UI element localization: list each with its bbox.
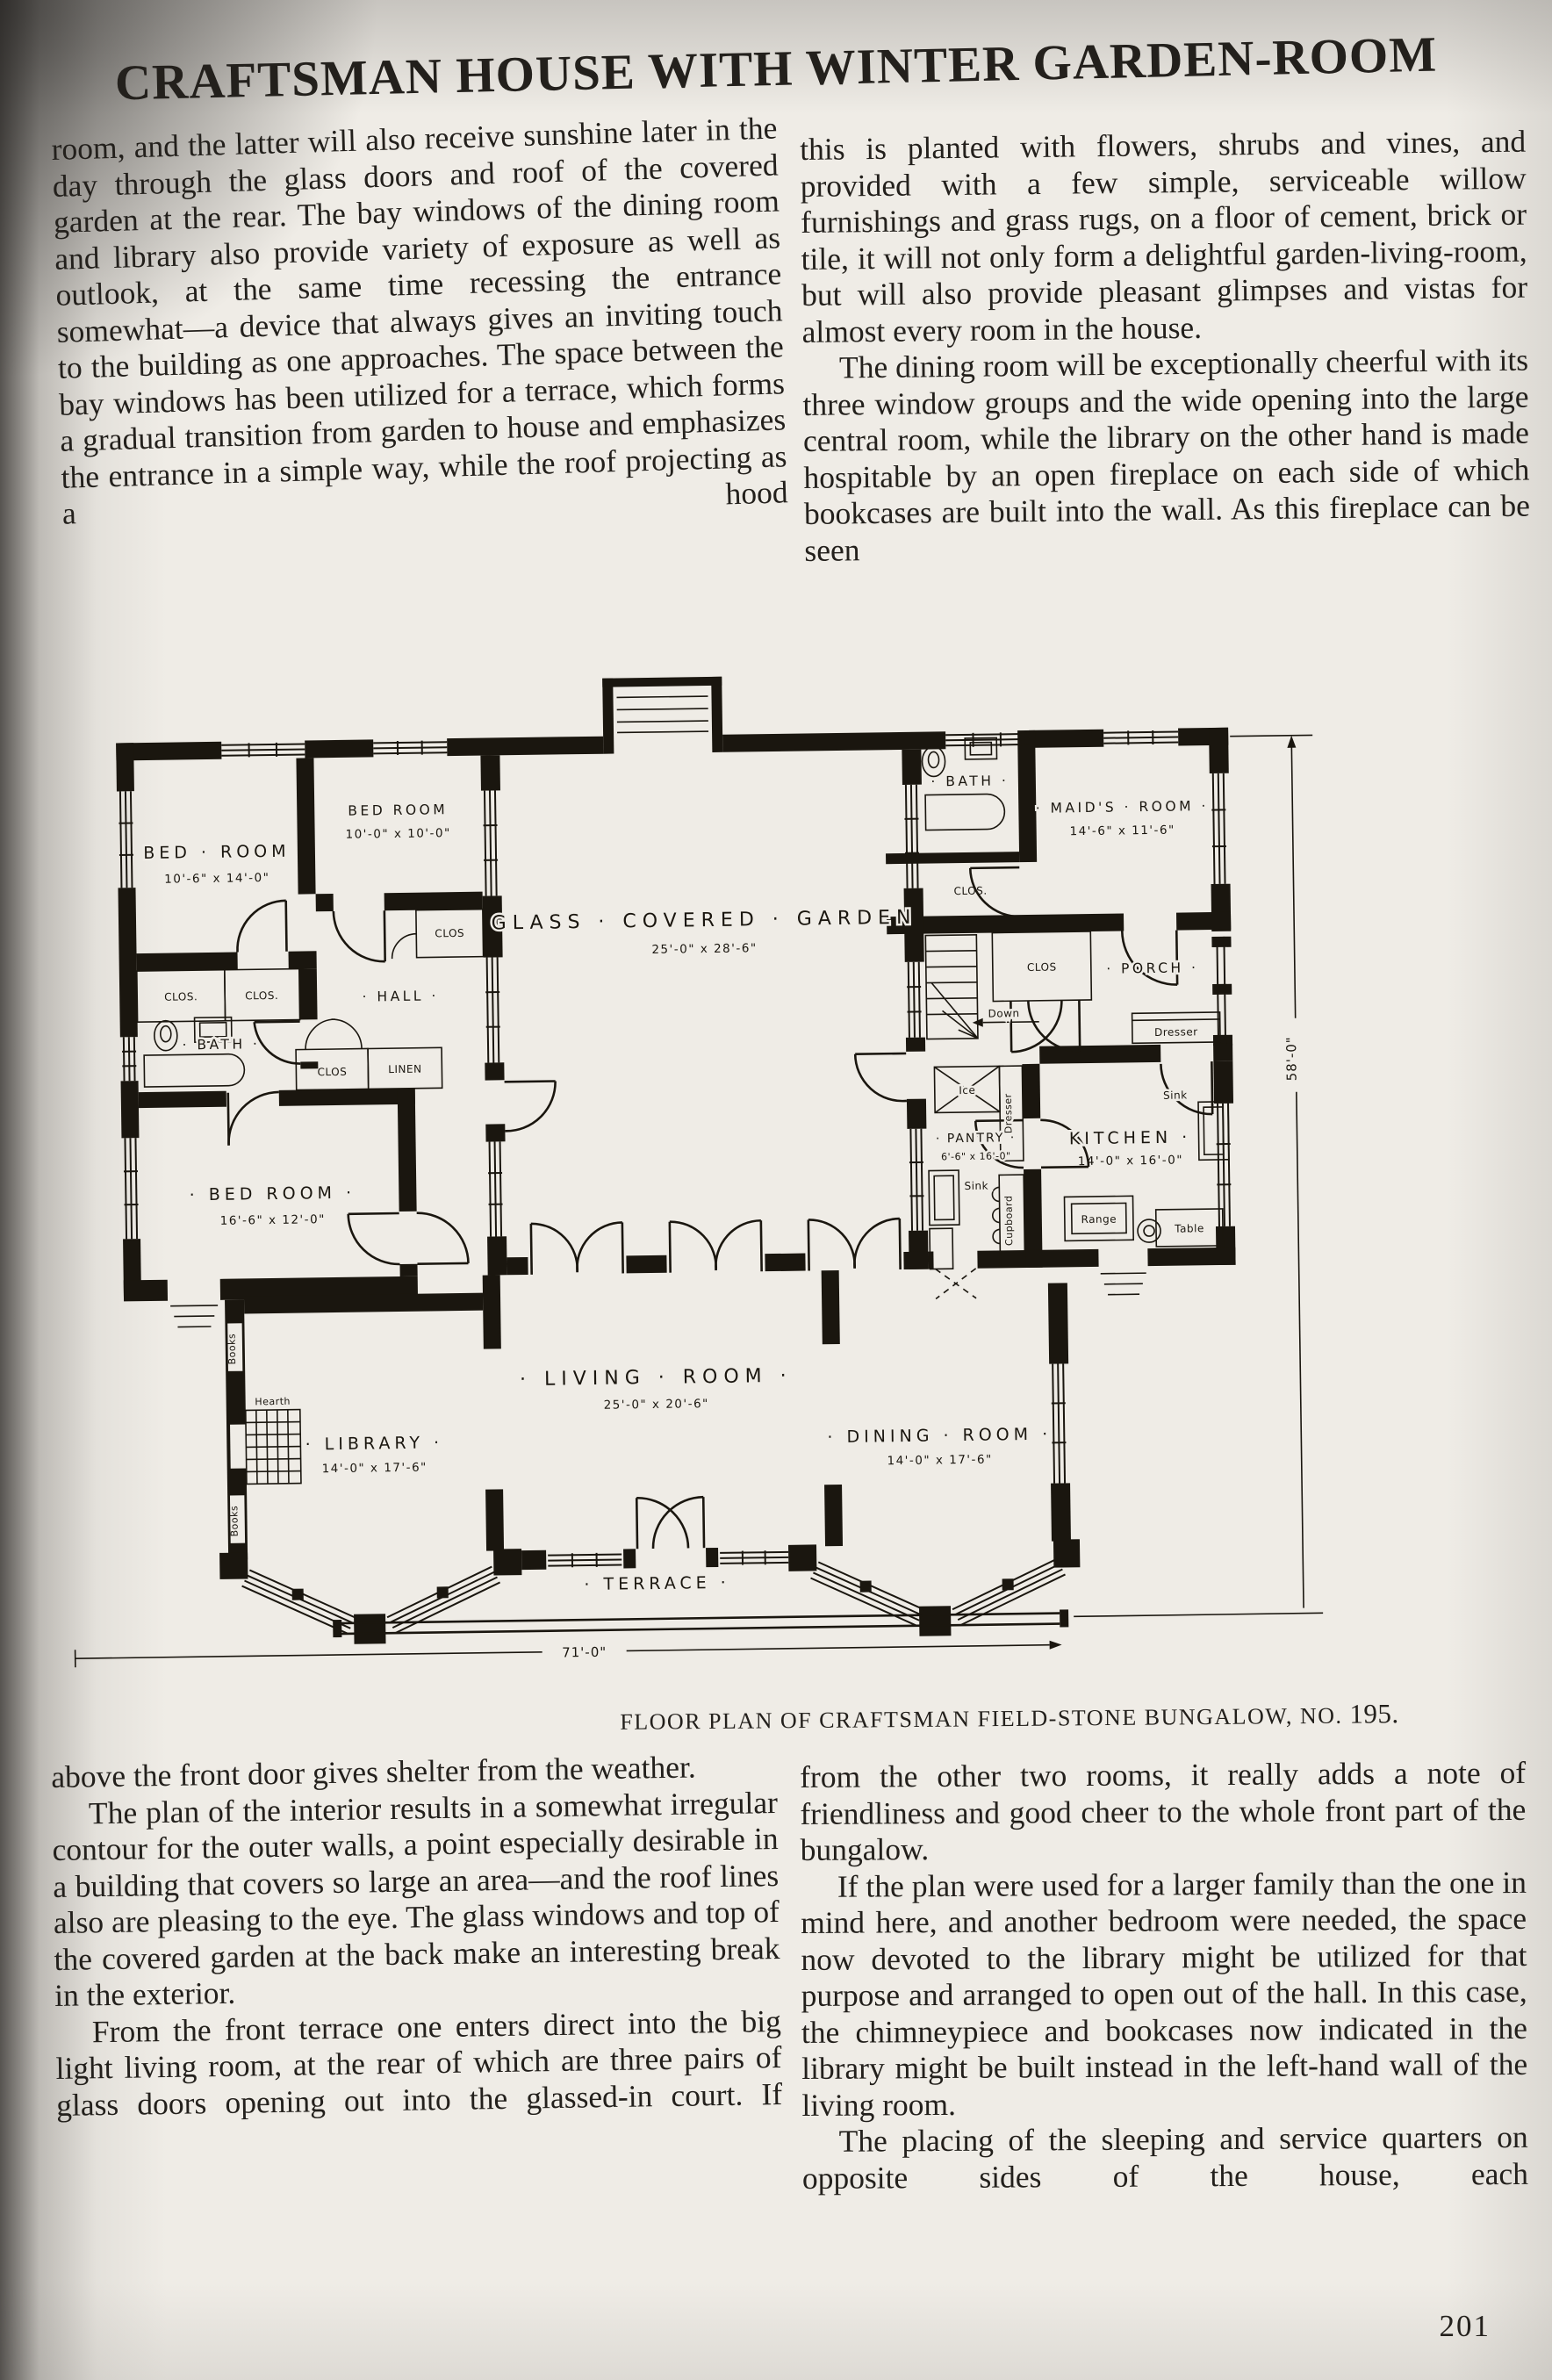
room-dims-garden: 25'-0" x 28'-6" xyxy=(651,941,757,957)
room-label-library: · LIBRARY · xyxy=(305,1433,443,1454)
room-dims-living: 25'-0" x 20'-6" xyxy=(604,1397,709,1413)
label-books: Books xyxy=(226,1334,238,1365)
room-dims-pantry: 6'-6" x 16'-0" xyxy=(941,1150,1011,1162)
room-dims-bed3: 16'-6" x 12'-0" xyxy=(220,1212,326,1228)
label-clos: CLOS xyxy=(435,927,464,939)
room-label-maids: · MAID'S · ROOM · xyxy=(1036,798,1209,816)
room-dims-kitchen: 14'-0" x 16'-0" xyxy=(1078,1154,1183,1169)
dimension-height: 58'-0" xyxy=(1283,1036,1300,1081)
caption-number: 195. xyxy=(1349,1698,1399,1729)
label-ice: Ice xyxy=(959,1084,975,1097)
room-dims-maids: 14'-6" x 11'-6" xyxy=(1069,823,1175,839)
bottom-columns: above the front door gives shelter from … xyxy=(51,1759,1526,2197)
paragraph: From the front terrace one enters direct… xyxy=(55,2003,783,2123)
column-top-right: this is planted with flowers, shrubs and… xyxy=(800,124,1531,569)
plan-walls xyxy=(115,670,1240,1648)
dimension-width: 71'-0" xyxy=(562,1644,607,1661)
paragraph: from the other two rooms, it really adds… xyxy=(800,1755,1527,1869)
room-label-bed3: · BED ROOM · xyxy=(190,1183,356,1205)
paragraph: The dining room will be exceptionally ch… xyxy=(802,342,1531,569)
room-label-bed2: BED ROOM xyxy=(348,802,448,819)
room-label-dining: · DINING · ROOM · xyxy=(827,1425,1052,1448)
caption-text: FLOOR PLAN OF CRAFTSMAN FIELD-STONE BUNG… xyxy=(620,1703,1342,1735)
room-label-garden: GLASS · COVERED · GARDEN xyxy=(492,907,917,935)
room-label-porch: · PORCH · xyxy=(1106,960,1198,976)
scanned-page: CRAFTSMAN HOUSE WITH WINTER GARDEN-ROOM … xyxy=(0,0,1552,2380)
room-label-bed1: BED · ROOM xyxy=(143,842,291,863)
label-dresser: Dresser xyxy=(1154,1025,1198,1039)
room-dims-dining: 14'-0" x 17'-6" xyxy=(887,1453,992,1469)
paragraph: If the plan were used for a larger famil… xyxy=(801,1864,1528,2124)
label-sink: Sink xyxy=(964,1180,988,1192)
floor-plan: GLASS · COVERED · GARDEN 25'-0" x 28'-6"… xyxy=(40,653,1512,1681)
label-down: Down xyxy=(988,1007,1019,1020)
floor-plan-drawing: GLASS · COVERED · GARDEN 25'-0" x 28'-6"… xyxy=(40,653,1512,1681)
page-title: CRAFTSMAN HOUSE WITH WINTER GARDEN-ROOM xyxy=(73,25,1478,113)
room-label-bath2: · BATH · xyxy=(930,773,1009,789)
paragraph: The plan of the interior results in a so… xyxy=(52,1785,781,2015)
paragraph: The placing of the sleeping and service … xyxy=(802,2119,1528,2197)
column-bottom-left: above the front door gives shelter from … xyxy=(51,1748,784,2197)
room-dims-bed1: 10'-6" x 14'-0" xyxy=(164,871,269,887)
label-clos: CLOS. xyxy=(954,885,988,898)
page-number: 201 xyxy=(1440,2309,1491,2344)
room-dims-library: 14'-0" x 17'-6" xyxy=(322,1461,428,1477)
room-label-bath1: · BATH · xyxy=(182,1036,260,1053)
paragraph: this is planted with flowers, shrubs and… xyxy=(800,124,1528,350)
column-top-left: room, and the latter will also receive s… xyxy=(51,110,789,568)
top-columns: room, and the latter will also receive s… xyxy=(51,132,1526,569)
label-table: Table xyxy=(1174,1222,1204,1234)
room-label-terrace: · TERRACE · xyxy=(584,1573,730,1594)
label-cupboard: Cupboard xyxy=(1002,1196,1015,1247)
label-clos: CLOS xyxy=(317,1066,347,1078)
room-label-hall: · HALL · xyxy=(362,988,438,1004)
room-label-kitchen: KITCHEN · xyxy=(1069,1127,1192,1148)
label-dresser: Dresser xyxy=(1002,1093,1015,1133)
column-bottom-right: from the other two rooms, it really adds… xyxy=(800,1755,1528,2197)
label-clos: CLOS xyxy=(1027,961,1057,974)
room-label-living: · LIVING · ROOM · xyxy=(520,1365,793,1391)
paragraph: room, and the latter will also receive s… xyxy=(51,110,788,532)
label-hearth: Hearth xyxy=(255,1396,291,1408)
room-dims-bed2: 10'-0" x 10'-0" xyxy=(345,826,450,842)
plan-caption: FLOOR PLAN OF CRAFTSMAN FIELD-STONE BUNG… xyxy=(492,1697,1527,1737)
label-books: Books xyxy=(228,1506,240,1537)
label-clos: CLOS. xyxy=(245,989,278,1003)
label-clos: CLOS. xyxy=(164,990,198,1003)
label-sink: Sink xyxy=(1163,1089,1188,1101)
label-linen: LINEN xyxy=(388,1063,421,1076)
label-range: Range xyxy=(1081,1213,1117,1226)
